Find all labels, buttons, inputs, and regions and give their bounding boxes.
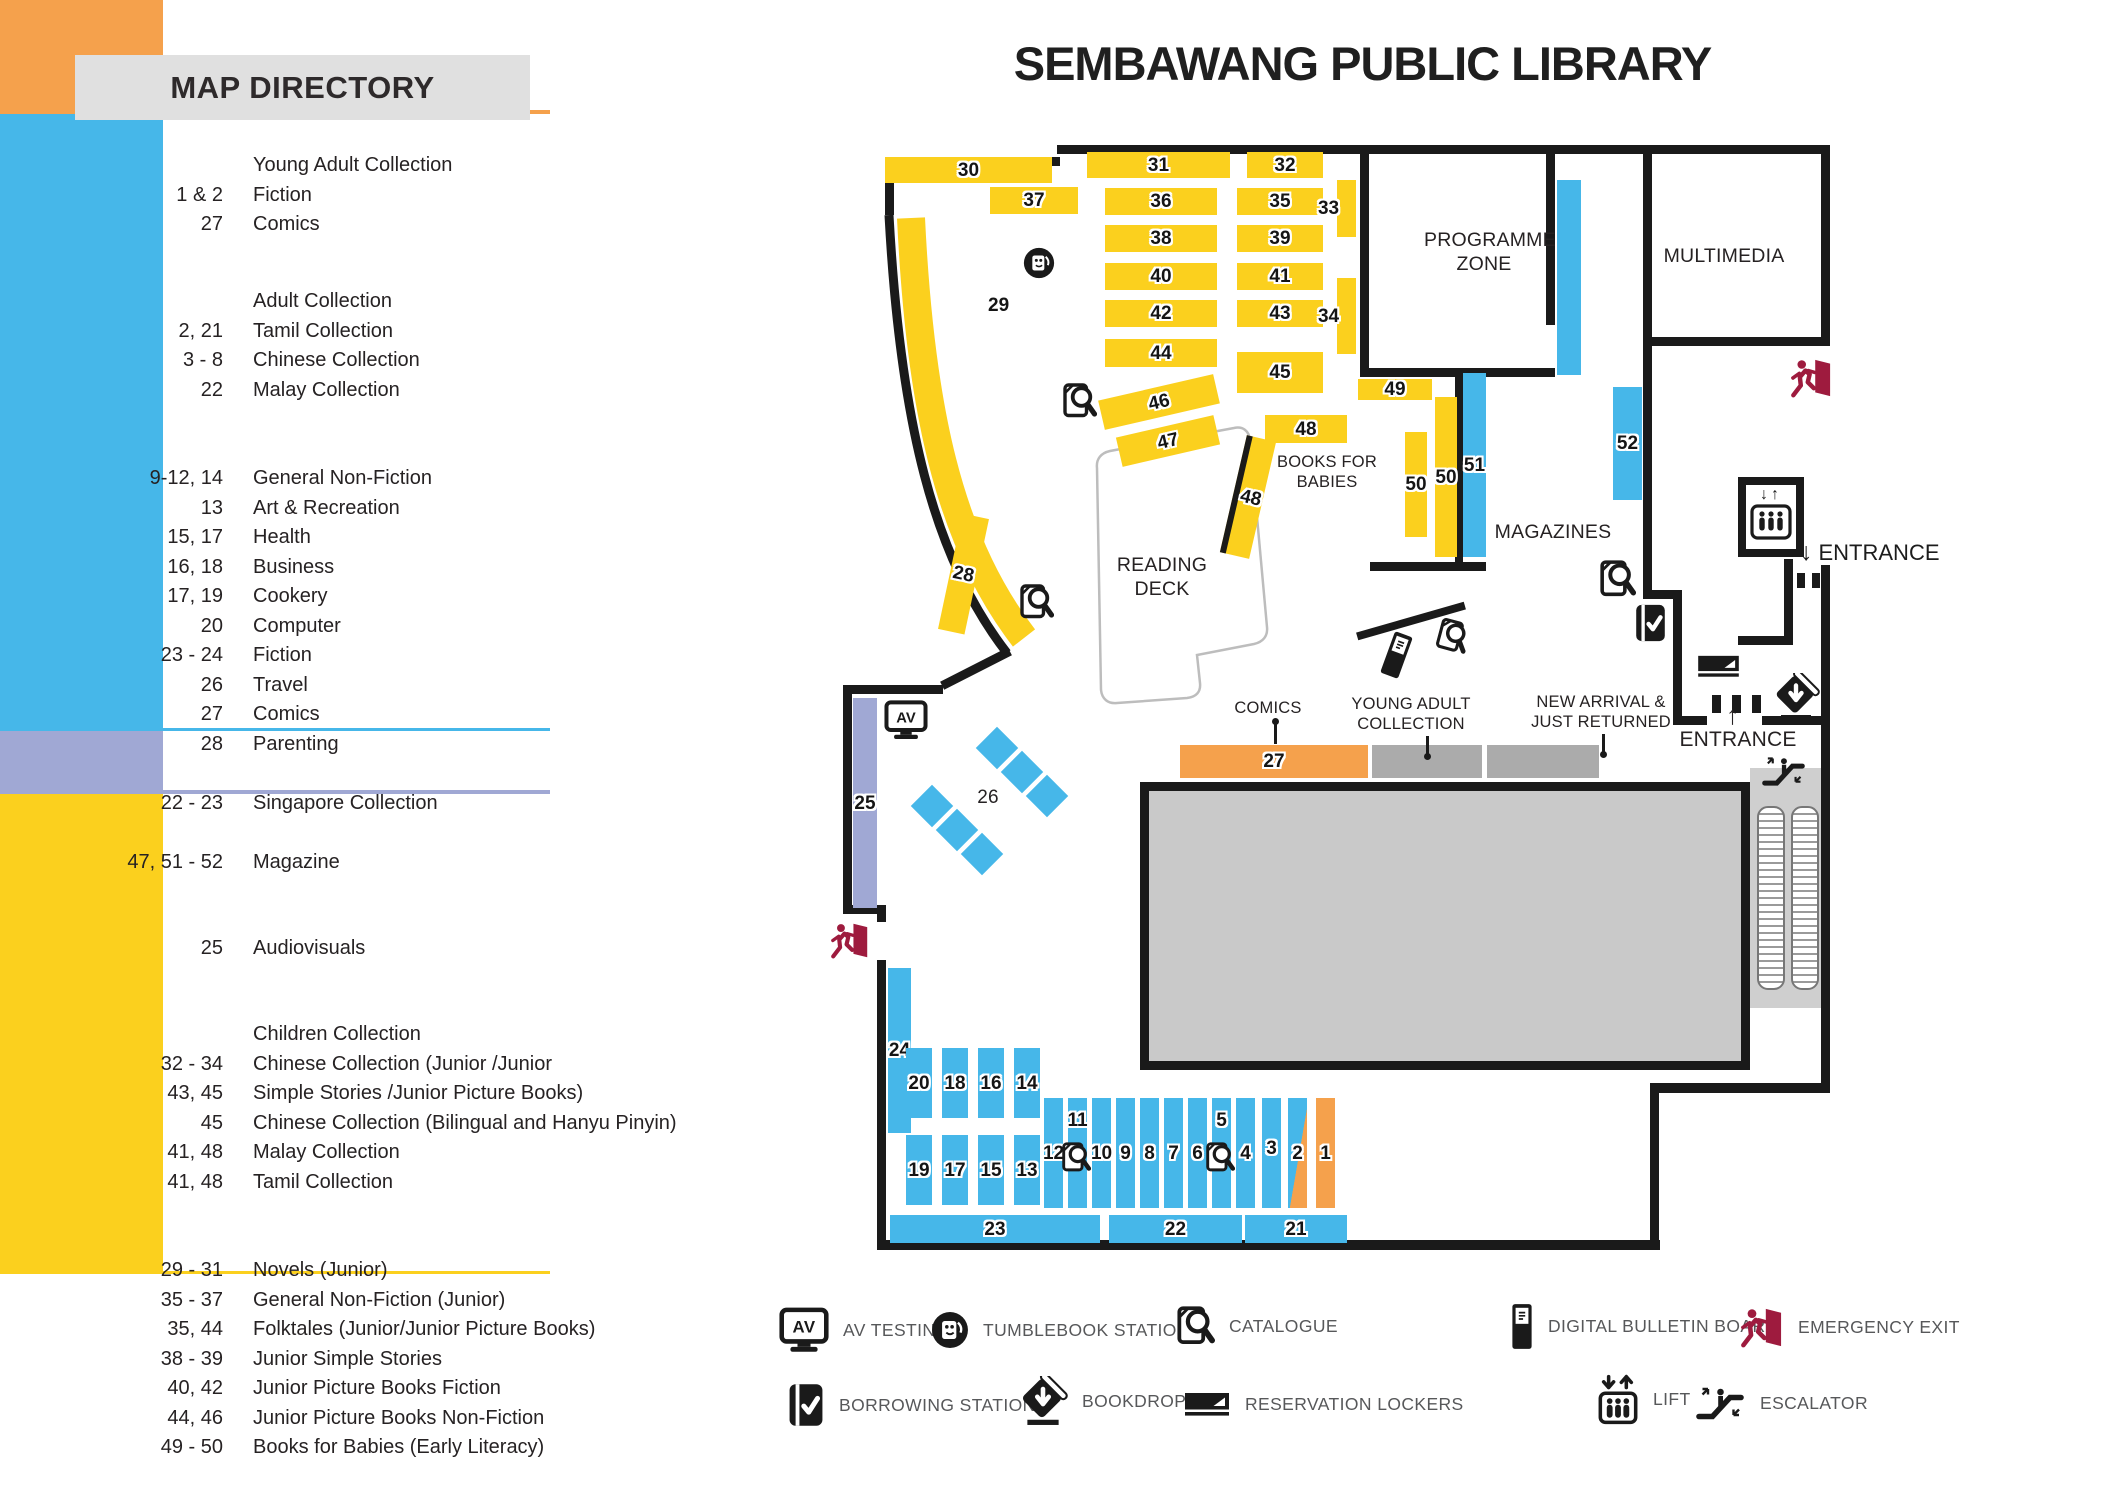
catalogue-icon <box>1062 1142 1091 1173</box>
shelf-number: 27 <box>1263 752 1284 771</box>
shelf-52: 52 <box>1613 387 1642 500</box>
directory-label: Novels (Junior) <box>253 1256 387 1286</box>
shelf-35: 35 <box>1237 188 1323 215</box>
directory-number: 45 <box>75 1109 223 1139</box>
reading-deck-label: READING DECK <box>1112 553 1212 601</box>
directory-label: Business <box>253 553 334 583</box>
legend-item: TUMBLEBOOK STATION <box>931 1311 1190 1349</box>
pointer-line <box>1602 734 1605 752</box>
directory-title: MAP DIRECTORY <box>170 70 434 106</box>
shelf-number: 10 <box>1091 1144 1112 1163</box>
directory-number: 23 - 24 <box>75 641 223 671</box>
shelf-bar <box>1487 745 1599 778</box>
shelf-number: 2 <box>1292 1144 1303 1163</box>
svg-text:AV: AV <box>793 1318 816 1337</box>
directory-label: Junior Picture Books Fiction <box>253 1374 501 1404</box>
wall <box>877 960 886 1250</box>
catalogue-icon <box>1177 1306 1215 1346</box>
shelf-number: 49 <box>1384 380 1405 399</box>
directory-number: 41, 48 <box>75 1168 223 1198</box>
legend-item: BOOKDROP <box>1018 1376 1186 1426</box>
catalogue-icon <box>1063 383 1097 419</box>
directory-label: Tamil Collection <box>253 317 393 347</box>
wall <box>1821 565 1830 1092</box>
shelf-number: 47 <box>1156 429 1181 452</box>
shelf-48: 48 <box>1265 415 1347 443</box>
shelf-19: 19 <box>906 1135 932 1205</box>
shelf-22: 22 <box>1109 1215 1242 1243</box>
shelf-2: 2 <box>1288 1098 1307 1208</box>
shelf-16: 16 <box>978 1048 1004 1118</box>
shelf-10: 10 <box>1092 1098 1111 1208</box>
directory-number: 15, 17 <box>75 523 223 553</box>
pointer-line <box>1426 736 1429 754</box>
legend-item: AVAV TESTING <box>779 1307 949 1353</box>
shelf-41: 41 <box>1237 263 1323 290</box>
directory-number: 44, 46 <box>75 1404 223 1434</box>
wall <box>1784 559 1793 644</box>
shelf-45: 45 <box>1237 352 1323 393</box>
directory-label: Fiction <box>253 641 312 671</box>
shelf-number: 20 <box>908 1074 929 1093</box>
pointer-line <box>1274 724 1277 744</box>
catalogue-icon <box>1020 584 1054 620</box>
wall <box>1821 145 1830 346</box>
directory-number: 43, 45 <box>75 1079 223 1109</box>
shelf-number: 21 <box>1285 1220 1306 1239</box>
directory-label: Comics <box>253 700 320 730</box>
legend-label: BOOKDROP <box>1082 1391 1186 1412</box>
av-testing-icon: AV <box>779 1307 829 1353</box>
shelf-6: 6 <box>1188 1098 1207 1208</box>
shelf-number: 51 <box>1464 456 1485 475</box>
reservation-lockers-icon <box>1183 1391 1231 1417</box>
shelf-18: 18 <box>942 1048 968 1118</box>
shelf-3: 3 <box>1262 1098 1281 1208</box>
shelf-8: 8 <box>1140 1098 1159 1208</box>
directory-label: Chinese Collection (Junior /Junior <box>253 1050 552 1080</box>
shelf-43: 43 <box>1237 300 1323 327</box>
up-arrow-icon: ↑ <box>1726 700 1739 731</box>
directory-number: 35 - 37 <box>75 1286 223 1316</box>
shelf-number: 50 <box>1405 475 1426 494</box>
shelf-number: 40 <box>1150 267 1171 286</box>
directory-number: 13 <box>75 494 223 524</box>
shelf-20: 20 <box>906 1048 932 1118</box>
reservation-lockers-icon <box>1696 654 1741 678</box>
tumblebook-station-icon <box>931 1311 969 1349</box>
lift-icon: ↓↑ <box>1738 477 1804 557</box>
borrowing-station-icon <box>787 1382 825 1428</box>
shelf-37: 37 <box>990 187 1078 214</box>
directory-label: Folktales (Junior/Junior Picture Books) <box>253 1315 595 1345</box>
directory-number: 38 - 39 <box>75 1345 223 1375</box>
directory-number: 47, 51 - 52 <box>75 848 223 878</box>
directory-label: Fiction <box>253 181 312 211</box>
directory-label: Malay Collection <box>253 376 400 406</box>
shelf-number: 14 <box>1016 1074 1037 1093</box>
shelf-50: 50 <box>1405 432 1427 537</box>
emergency-exit-icon <box>830 922 870 959</box>
escalator-icon <box>1694 1384 1746 1422</box>
directory-label: Chinese Collection <box>253 346 420 376</box>
escalator-belt <box>1757 806 1785 990</box>
directory-number: 20 <box>75 612 223 642</box>
shelf-number: 30 <box>958 161 979 180</box>
pointer-dot <box>1272 718 1279 725</box>
catalogue-icon <box>1206 1142 1235 1173</box>
wall <box>1643 337 1830 346</box>
directory-number: 9-12, 14 <box>75 464 223 494</box>
shelf-number: 9 <box>1120 1144 1131 1163</box>
legend-label: RESERVATION LOCKERS <box>1245 1394 1464 1415</box>
svg-text:AV: AV <box>896 710 916 726</box>
shelf-39: 39 <box>1237 225 1323 252</box>
legend-label: TUMBLEBOOK STATION <box>983 1320 1190 1341</box>
emergency-exit-icon <box>1790 358 1833 398</box>
directory-label: Singapore Collection <box>253 789 438 819</box>
directory-number: 16, 18 <box>75 553 223 583</box>
legend-item: CATALOGUE <box>1177 1306 1338 1346</box>
shelf-number: 52 <box>1617 434 1638 453</box>
wall <box>1738 636 1793 645</box>
shelf-number: 22 <box>1165 1220 1186 1239</box>
entrance-bottom-label: ENTRANCE <box>1678 728 1798 752</box>
shelf-number: 1 <box>1320 1144 1331 1163</box>
shelf-number: 36 <box>1150 192 1171 211</box>
legend-item: RESERVATION LOCKERS <box>1183 1391 1464 1417</box>
directory-number: 17, 19 <box>75 582 223 612</box>
directory-label: Chinese Collection (Bilingual and Hanyu … <box>253 1109 677 1139</box>
directory-label: Tamil Collection <box>253 1168 393 1198</box>
shelf-number: 42 <box>1150 304 1171 323</box>
shelf-number: 38 <box>1150 229 1171 248</box>
page-title: SEMBAWANG PUBLIC LIBRARY <box>1005 36 1720 91</box>
entrance-top: ↓ ENTRANCE <box>1800 538 1940 567</box>
directory-number: 1 & 2 <box>75 181 223 211</box>
shelf-50: 50 <box>1435 397 1457 557</box>
shelf-number: 39 <box>1269 229 1290 248</box>
shelf-number: 33 <box>1318 199 1339 218</box>
shelf-number: 43 <box>1269 304 1290 323</box>
directory-label: General Non-Fiction <box>253 464 432 494</box>
shelf-1: 1 <box>1316 1098 1335 1208</box>
shelf-number: 31 <box>1148 156 1169 175</box>
shelf-number: 8 <box>1144 1144 1155 1163</box>
legend-item: BORROWING STATION <box>787 1382 1036 1428</box>
directory-number: 41, 48 <box>75 1138 223 1168</box>
shelf-number: 7 <box>1168 1144 1179 1163</box>
shelf-44: 44 <box>1105 339 1217 367</box>
programme-zone-label: PROGRAMME ZONE <box>1424 228 1544 276</box>
directory-number: 40, 42 <box>75 1374 223 1404</box>
comics-label: COMICS <box>1218 698 1318 718</box>
shelf-number: 15 <box>980 1161 1001 1180</box>
shelf-number: 34 <box>1318 307 1339 326</box>
shelf-13: 13 <box>1014 1135 1040 1205</box>
shelf-number: 4 <box>1240 1144 1251 1163</box>
directory-label: Adult Collection <box>253 287 392 317</box>
legend-label: LIFT <box>1653 1389 1691 1410</box>
shelf-number: 46 <box>1147 390 1172 413</box>
shelf-number: 12 <box>1043 1144 1064 1163</box>
shelf-49: 49 <box>1358 379 1432 400</box>
shelf-36: 36 <box>1105 188 1217 215</box>
lift-icon <box>1597 1373 1639 1425</box>
young-adult-label: YOUNG ADULT COLLECTION <box>1341 694 1481 734</box>
magazines-label: MAGAZINES <box>1478 520 1628 544</box>
shelf-number: 41 <box>1269 267 1290 286</box>
entrance-gate <box>1712 695 1721 713</box>
shelf-14: 14 <box>1014 1048 1040 1118</box>
directory-number: 22 <box>75 376 223 406</box>
shelf-27: 27 <box>1180 745 1368 778</box>
central-core-block <box>1140 782 1750 1070</box>
shelf-17: 17 <box>942 1135 968 1205</box>
shelf-number: 28 <box>951 563 976 586</box>
legend-label: EMERGENCY EXIT <box>1798 1317 1960 1338</box>
av-testing-icon: AV <box>884 700 928 740</box>
shelf-number: 45 <box>1269 363 1290 382</box>
shelf-32: 32 <box>1247 152 1323 178</box>
shelf-21: 21 <box>1245 1215 1347 1243</box>
directory-label: Simple Stories /Junior Picture Books) <box>253 1079 583 1109</box>
wall <box>1370 562 1486 571</box>
escalator-icon <box>1760 754 1807 788</box>
new-arrival-label: NEW ARRIVAL & JUST RETURNED <box>1516 692 1686 732</box>
directory-label: Health <box>253 523 311 553</box>
shelf-number: 44 <box>1150 344 1171 363</box>
directory-number: 26 <box>75 671 223 701</box>
directory-number: 22 - 23 <box>75 789 223 819</box>
pointer-dot <box>1600 751 1607 758</box>
entrance-top-label: ENTRANCE <box>1819 540 1940 566</box>
shelf-number: 3 <box>1266 1139 1277 1158</box>
shelf-30: 30 <box>885 157 1052 183</box>
shelf-number: 35 <box>1269 192 1290 211</box>
shelf-number: 23 <box>984 1220 1005 1239</box>
directory-number: 32 - 34 <box>75 1050 223 1080</box>
shelf-number: 19 <box>908 1161 929 1180</box>
shelf-26-label: 26 <box>963 786 1013 810</box>
directory-number: 29 - 31 <box>75 1256 223 1286</box>
legend-item: EMERGENCY EXIT <box>1740 1307 1960 1348</box>
legend-label: ESCALATOR <box>1760 1393 1868 1414</box>
shelf-9: 9 <box>1116 1098 1135 1208</box>
wall <box>843 685 943 694</box>
shelf-number: 48 <box>1238 486 1263 509</box>
directory-number: 25 <box>75 934 223 964</box>
legend-item: LIFT <box>1597 1373 1691 1425</box>
shelf-42: 42 <box>1105 300 1217 327</box>
directory-label: Comics <box>253 210 320 240</box>
directory-number: 3 - 8 <box>75 346 223 376</box>
directory-label: Magazine <box>253 848 340 878</box>
bookdrop-icon <box>1018 1376 1068 1426</box>
wall <box>1643 145 1652 599</box>
directory-number: 49 - 50 <box>75 1433 223 1463</box>
directory-number: 28 <box>75 730 223 760</box>
legend-item: ESCALATOR <box>1694 1384 1868 1422</box>
tumblebook-station-icon <box>1023 247 1055 279</box>
shelf-34: 34 <box>1337 278 1356 354</box>
shelf-25: 25 <box>853 698 877 908</box>
entrance-gate <box>1797 573 1805 588</box>
directory-label: Cookery <box>253 582 327 612</box>
shelf-number: 13 <box>1016 1161 1037 1180</box>
directory-label: Computer <box>253 612 341 642</box>
directory-label: General Non-Fiction (Junior) <box>253 1286 505 1316</box>
wall <box>843 685 852 914</box>
directory-label: Art & Recreation <box>253 494 400 524</box>
escalator-belt <box>1791 806 1819 990</box>
legend-label: BORROWING STATION <box>839 1395 1036 1416</box>
shelf-number: 11 <box>1067 1111 1087 1130</box>
shelf-7: 7 <box>1164 1098 1183 1208</box>
borrowing-station-icon <box>1634 603 1667 643</box>
pointer-dot <box>1424 753 1431 760</box>
shelf-23: 23 <box>890 1215 1100 1243</box>
directory-number: 2, 21 <box>75 317 223 347</box>
shelf-number: 6 <box>1192 1144 1203 1163</box>
directory-label: Malay Collection <box>253 1138 400 1168</box>
catalogue-icon <box>1600 560 1636 598</box>
down-arrow-icon: ↓ <box>1800 538 1813 567</box>
shelf-12: 12 <box>1044 1098 1063 1208</box>
directory-label: Travel <box>253 671 308 701</box>
multimedia-label: MULTIMEDIA <box>1634 244 1814 268</box>
shelf-number: 17 <box>944 1161 965 1180</box>
shelf-number: 32 <box>1274 156 1295 175</box>
shelf-number: 50 <box>1435 468 1456 487</box>
shelf-31: 31 <box>1087 152 1230 178</box>
directory-label: Parenting <box>253 730 339 760</box>
directory-label: Junior Picture Books Non-Fiction <box>253 1404 544 1434</box>
shelf-33: 33 <box>1337 180 1356 237</box>
directory-number: 27 <box>75 210 223 240</box>
entrance-gate <box>1752 695 1761 713</box>
directory-number: 35, 44 <box>75 1315 223 1345</box>
bookdrop-icon <box>1772 673 1820 721</box>
shelf-number: 18 <box>944 1074 965 1093</box>
wall <box>1650 1083 1830 1093</box>
shelf-number: 5 <box>1216 1111 1227 1130</box>
entrance-gate <box>1812 573 1820 588</box>
wall <box>1650 1083 1659 1250</box>
directory-label: Audiovisuals <box>253 934 365 964</box>
directory-label: Junior Simple Stories <box>253 1345 442 1375</box>
directory-header: MAP DIRECTORY <box>75 55 530 120</box>
shelf-bar <box>1557 180 1581 375</box>
shelf-number: 48 <box>1295 420 1316 439</box>
books-for-babies-label: BOOKS FOR BABIES <box>1277 452 1377 492</box>
shelf-4: 4 <box>1236 1098 1255 1208</box>
shelf-number: 37 <box>1023 191 1044 210</box>
wall <box>1360 145 1369 377</box>
library-floor-plan-page: MAP DIRECTORY Young Adult Collection1 & … <box>0 0 2105 1489</box>
shelf-38: 38 <box>1105 225 1217 252</box>
shelf-number: 16 <box>980 1074 1001 1093</box>
legend-label: CATALOGUE <box>1229 1316 1338 1337</box>
shelf-40: 40 <box>1105 263 1217 290</box>
directory-label: Books for Babies (Early Literacy) <box>253 1433 544 1463</box>
digital-bulletin-board-icon <box>1510 1303 1534 1350</box>
emergency-exit-icon <box>1740 1307 1784 1348</box>
shelf-number: 25 <box>854 794 875 813</box>
directory-label: Children Collection <box>253 1020 421 1050</box>
directory-label: Young Adult Collection <box>253 151 452 181</box>
shelf-29-label: 29 <box>988 296 1009 315</box>
legend-item: DIGITAL BULLETIN BOARD <box>1510 1303 1779 1350</box>
shelf-15: 15 <box>978 1135 1004 1205</box>
directory-number: 27 <box>75 700 223 730</box>
